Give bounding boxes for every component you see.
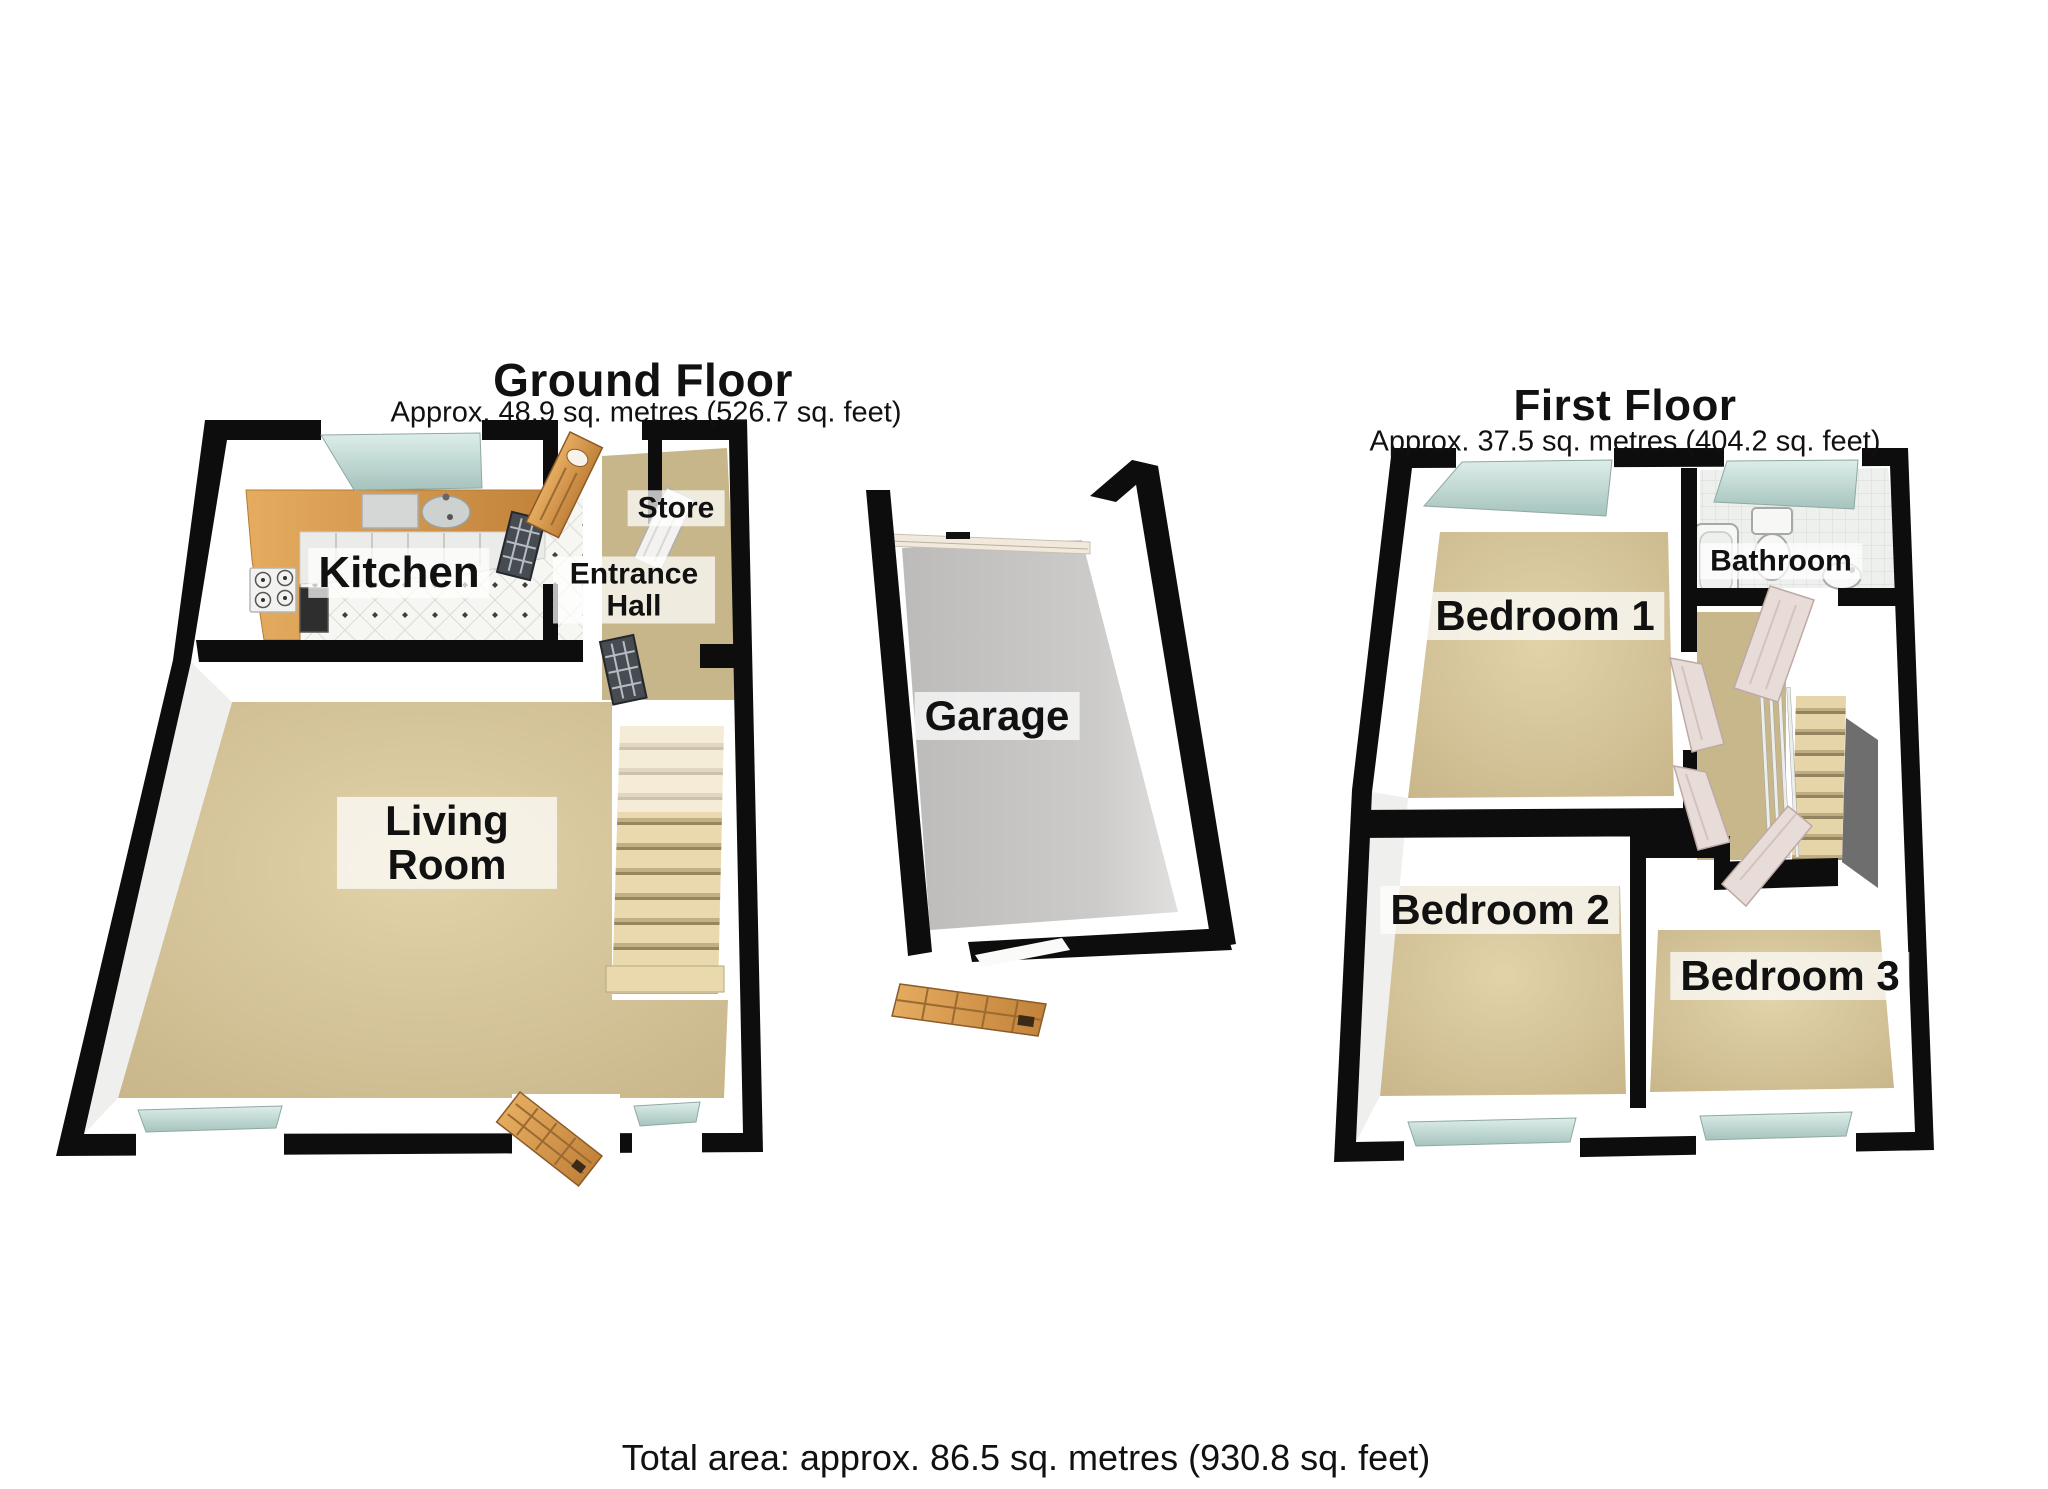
floorplan-image: Ground Floor Approx. 48.9 sq. metres (52… — [0, 0, 2048, 1489]
bedroom1-label: Bedroom 1 — [1425, 592, 1664, 640]
garage-label: Garage — [915, 692, 1080, 740]
sink-tap-icon — [443, 494, 450, 501]
bedroom2-label: Bedroom 2 — [1380, 886, 1619, 934]
kitchen-sink-drainer — [362, 494, 418, 528]
bedroom3-label: Bedroom 3 — [1670, 952, 1909, 1000]
garage-door — [892, 984, 1046, 1036]
first-floor-subtitle: Approx. 37.5 sq. metres (404.2 sq. feet) — [1370, 426, 1881, 459]
stove-hob — [250, 568, 296, 612]
stair-cutaway-overlay — [618, 726, 726, 812]
bedroom2-window — [1404, 1118, 1580, 1168]
garage-plan — [866, 460, 1236, 1036]
kitchen-sink — [422, 496, 470, 528]
stair-bullnose — [606, 966, 724, 992]
bathroom-label: Bathroom — [1700, 543, 1862, 579]
living-window-left — [136, 1106, 284, 1160]
store-label: Store — [628, 490, 725, 526]
bedroom1-floor — [1408, 532, 1674, 798]
floorplan-graphics — [0, 0, 2048, 1489]
ground-staircase — [606, 726, 726, 994]
entrance-hall-label: Entrance Hall — [553, 557, 715, 624]
living-room-label: Living Room — [337, 797, 557, 889]
first-floor-title: First Floor — [1513, 381, 1736, 431]
stairwell-void — [1842, 718, 1878, 888]
patio-door — [497, 1092, 620, 1186]
total-area-text: Total area: approx. 86.5 sq. metres (930… — [622, 1437, 1430, 1479]
bedroom3-window — [1696, 1112, 1856, 1162]
living-window-right — [632, 1102, 702, 1154]
kitchen-label: Kitchen — [308, 548, 489, 598]
ground-floor-subtitle: Approx. 48.9 sq. metres (526.7 sq. feet) — [391, 397, 902, 430]
